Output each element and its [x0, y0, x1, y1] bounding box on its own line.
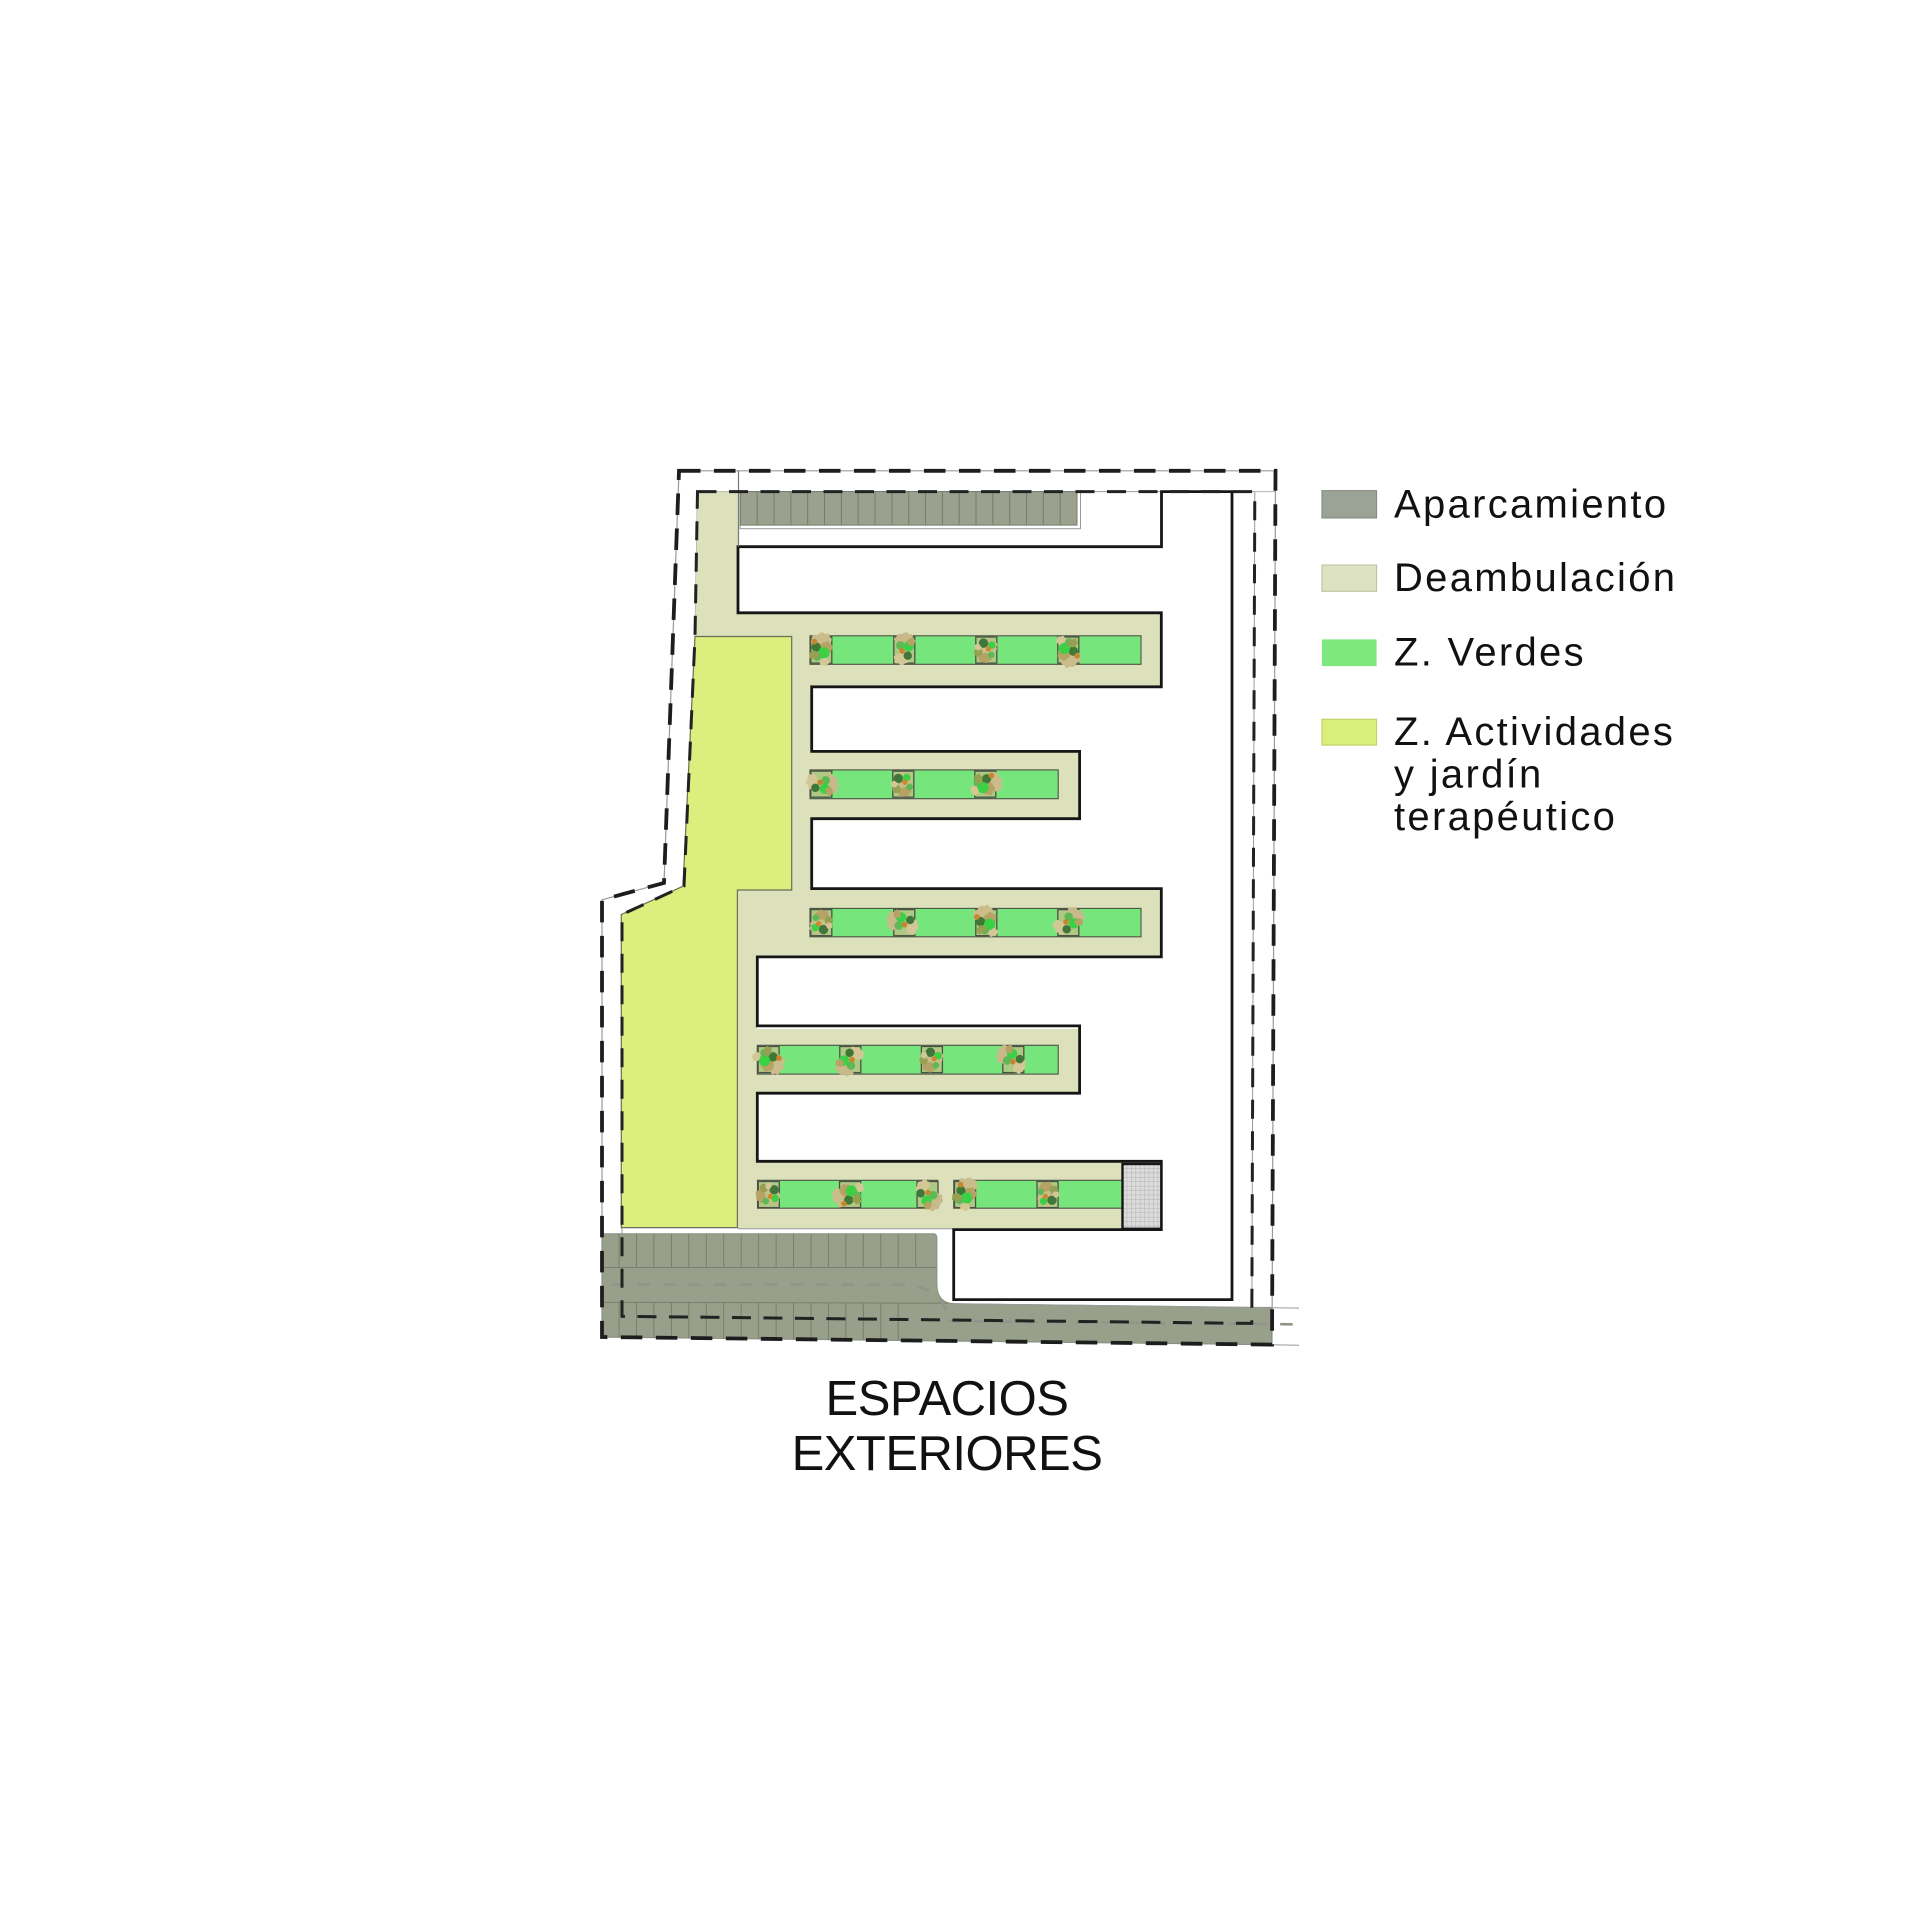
svg-text:Deambulación: Deambulación [1394, 556, 1677, 600]
svg-text:Aparcamiento: Aparcamiento [1394, 483, 1668, 527]
svg-text:Z. Actividades: Z. Actividades [1394, 710, 1675, 754]
svg-text:EXTERIORES: EXTERIORES [792, 1427, 1103, 1481]
svg-text:terapéutico: terapéutico [1394, 795, 1617, 839]
svg-text:y jardín: y jardín [1394, 753, 1544, 797]
svg-text:Z. Verdes: Z. Verdes [1394, 631, 1586, 675]
svg-text:ESPACIOS: ESPACIOS [826, 1372, 1069, 1426]
